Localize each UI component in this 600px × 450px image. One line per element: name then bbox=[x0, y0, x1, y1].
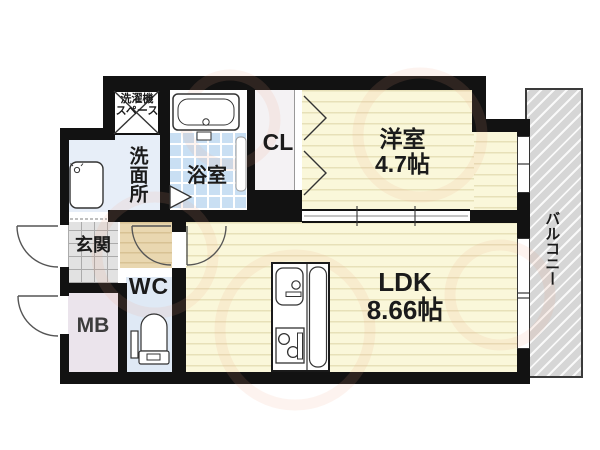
meter-box-label: MB bbox=[68, 315, 118, 338]
ldk-name: LDK bbox=[378, 267, 431, 297]
bathroom-label: 浴室 bbox=[168, 166, 246, 188]
entrance-label: 玄関 bbox=[68, 236, 118, 255]
meter-box-door-swing bbox=[18, 296, 58, 336]
ldk-size: 8.66帖 bbox=[367, 295, 444, 325]
window-western-balcony bbox=[517, 136, 530, 193]
wall-left-a bbox=[60, 128, 69, 225]
western-room-label: 洋室 4.7帖 bbox=[320, 127, 485, 177]
wc-label: WC bbox=[126, 274, 172, 299]
wall-bottom bbox=[60, 372, 522, 384]
sliding-door-western-ldk bbox=[302, 209, 470, 223]
wall-wc-right bbox=[172, 268, 186, 372]
entrance-door-swing bbox=[17, 226, 58, 267]
bathtub-area bbox=[170, 88, 247, 135]
laundry-space-label-line1: 洗濯機 bbox=[121, 93, 154, 105]
western-room-name: 洋室 bbox=[380, 126, 426, 152]
washroom-label: 洗面所 bbox=[126, 139, 147, 209]
laundry-space-label-line2: スペース bbox=[116, 105, 159, 117]
ldk-label: LDK 8.66帖 bbox=[310, 268, 500, 324]
laundry-space-label: 洗濯機 スペース bbox=[110, 94, 164, 118]
wall-right-c bbox=[517, 349, 530, 384]
hallway-floor bbox=[120, 222, 172, 268]
floor-plan: 洗濯機 スペース 洗面所 浴室 CL 洋室 4.7帖 LDK 8.66帖 玄関 … bbox=[0, 0, 600, 450]
wall-bath-closet bbox=[247, 88, 255, 192]
wall-closet-bottom bbox=[247, 190, 302, 222]
western-room-size: 4.7帖 bbox=[375, 151, 430, 177]
balcony-label: バルコニー bbox=[543, 183, 559, 313]
closet-label: CL bbox=[255, 130, 301, 155]
wall-slide-right bbox=[470, 210, 530, 223]
wall-entrance-mb bbox=[60, 283, 118, 293]
wall-hall-pillar bbox=[172, 210, 186, 232]
window-ldk-balcony bbox=[517, 238, 530, 349]
wall-right-a bbox=[517, 119, 530, 136]
